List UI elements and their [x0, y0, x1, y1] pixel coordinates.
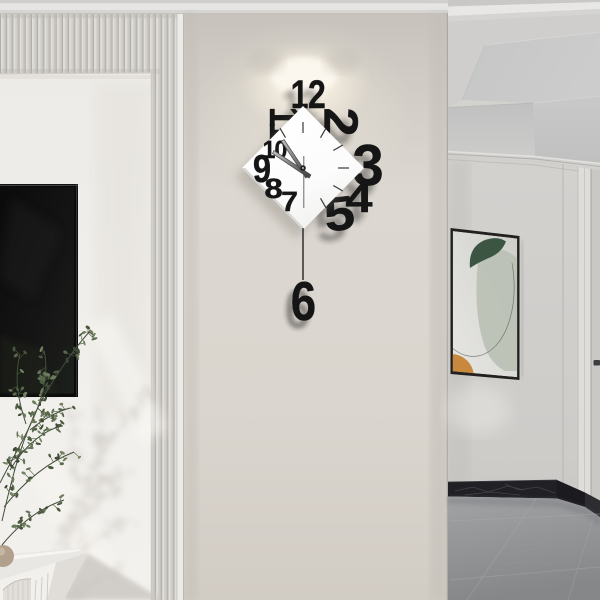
svg-text:8: 8: [264, 173, 282, 204]
svg-text:6: 6: [291, 270, 316, 332]
svg-text:7: 7: [281, 186, 298, 217]
